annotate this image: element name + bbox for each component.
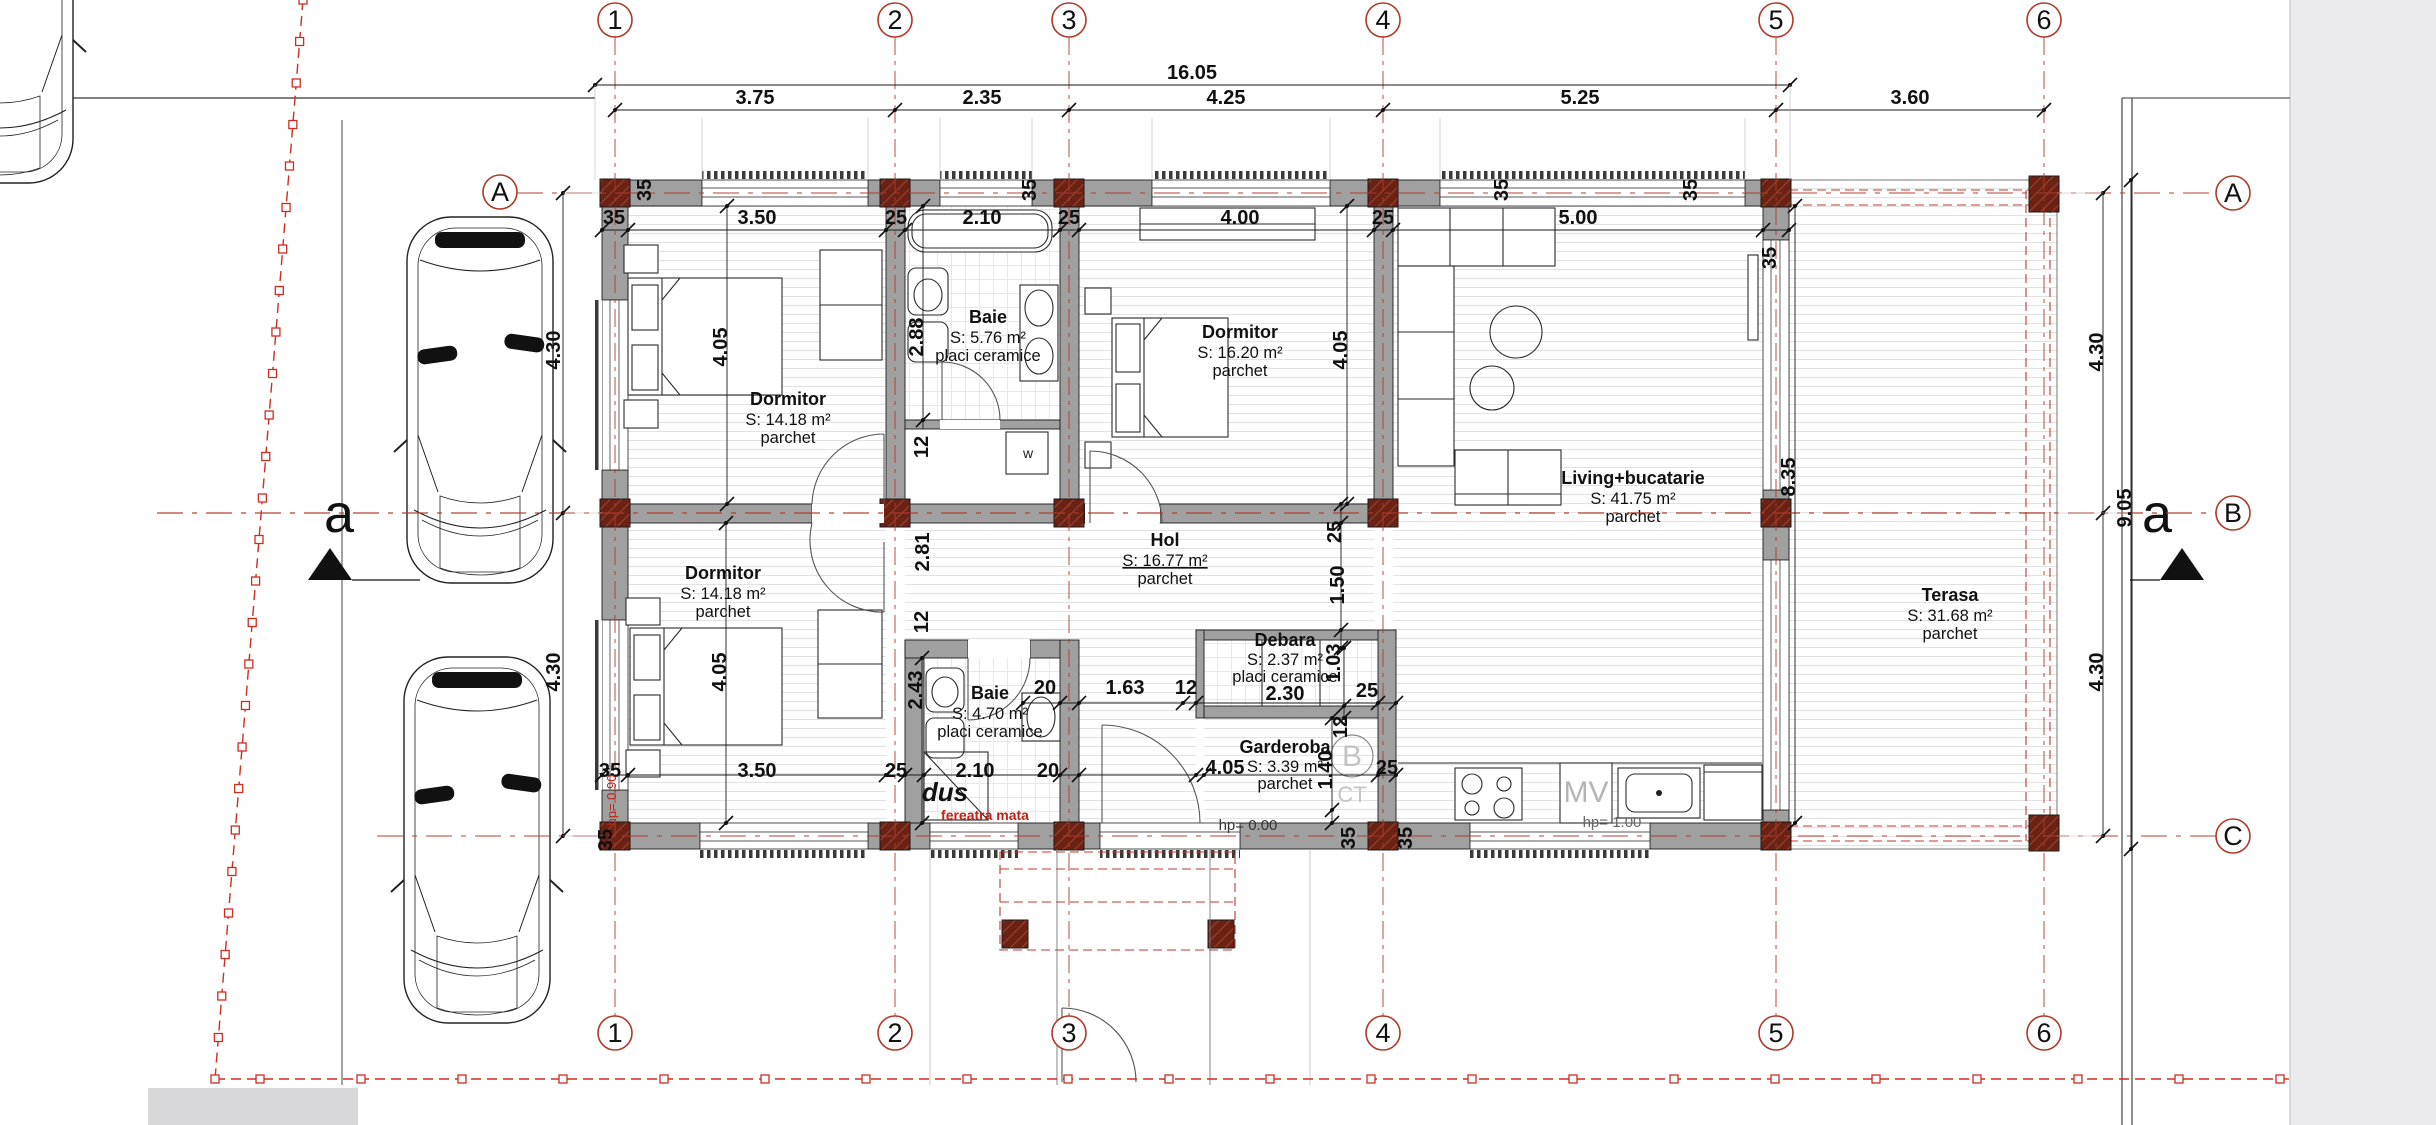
svg-text:Dormitor: Dormitor (750, 389, 826, 409)
boundary-marker (1165, 1075, 1173, 1083)
window-left-dormitor1 (594, 300, 628, 470)
axis-bubble-top-1-label: 1 (607, 5, 622, 35)
dim-dot (1345, 502, 1349, 506)
boundary-marker (963, 1075, 971, 1083)
dim-dot (921, 418, 925, 422)
porch-column (1002, 920, 1028, 948)
boundary-marker (269, 370, 277, 378)
dim-dot (1181, 701, 1185, 705)
dim-label: 1.63 (1106, 677, 1145, 699)
boundary-marker (1771, 1075, 1779, 1083)
dim-dot (1394, 701, 1398, 705)
svg-text:S: 3.39 m²: S: 3.39 m² (1247, 758, 1324, 776)
dim-dot (725, 204, 729, 208)
dim-dot (1761, 228, 1765, 232)
axis-bubble-top-2-label: 2 (887, 5, 902, 35)
dim-label: 35 (1019, 179, 1041, 201)
boundary-marker (225, 909, 233, 917)
boundary-marker (241, 702, 249, 710)
boundary-marker (248, 619, 256, 627)
dim-label: 25 (1058, 207, 1080, 229)
section-triangle-right (2160, 548, 2204, 580)
car-icon (0, 0, 86, 183)
boundary-marker (2175, 1075, 2183, 1083)
svg-text:Living+bucatarie: Living+bucatarie (1561, 468, 1705, 488)
dim-dot (1339, 628, 1343, 632)
dim-label: 25 (1356, 680, 1378, 702)
dim-dot (1077, 701, 1081, 705)
boundary-marker (245, 660, 253, 668)
axis-bubble-bottom-6-label: 6 (2036, 1018, 2051, 1048)
dim-label: 4.30 (2086, 333, 2108, 372)
dim-label: 3.50 (738, 207, 777, 229)
boundary-marker (235, 785, 243, 793)
dim-label: 35 (634, 179, 656, 201)
axis-bubble-top-5-label: 5 (1768, 5, 1783, 35)
boundary-marker (1064, 1075, 1072, 1083)
boundary-marker (296, 38, 304, 46)
dim-label: 3.50 (738, 760, 777, 782)
dim-label: 2.10 (963, 207, 1002, 229)
dim-dot (1021, 701, 1025, 705)
nightstand (624, 245, 658, 273)
boundary-marker (256, 1075, 264, 1083)
boundary-marker (660, 1075, 668, 1083)
dim-label: 25 (885, 207, 907, 229)
dim-label: 16.05 (1167, 62, 1217, 84)
dim-label: 8.35 (1778, 458, 1800, 497)
axis-bubble-right-A-label: A (2224, 178, 2242, 208)
svg-text:Dormitor: Dormitor (685, 563, 761, 583)
dim-label: 12 (1330, 716, 1352, 738)
svg-text:S: 16.20 m²: S: 16.20 m² (1197, 344, 1283, 362)
bottom-left-gray-box (148, 1088, 358, 1125)
boundary-marker (255, 536, 263, 544)
axis-bubble-bottom-1-label: 1 (607, 1018, 622, 1048)
cars (0, 0, 566, 1023)
dim-label: 12 (1175, 677, 1197, 699)
dim-dot (1345, 204, 1349, 208)
dim-dot (1342, 704, 1346, 708)
dim-label: 1.03 (1323, 644, 1345, 683)
porch (930, 849, 1310, 1085)
svg-text:S: 31.68 m²: S: 31.68 m² (1907, 607, 1993, 625)
sofa (1398, 208, 1555, 266)
dim-dot (724, 821, 728, 825)
window-bottom-dormitor3 (700, 823, 868, 858)
boundary-marker (2074, 1075, 2082, 1083)
boiler-label: B (1342, 740, 1362, 773)
axis-bubble-right-B-label: B (2224, 498, 2242, 528)
matte-window-label: fereatra mata (941, 807, 1029, 823)
svg-text:Baie: Baie (971, 683, 1009, 703)
dim-label: 4.30 (2086, 653, 2108, 692)
dim-label: 2.88 (906, 318, 928, 357)
svg-text:Dormitor: Dormitor (1202, 322, 1278, 342)
svg-text:Debara: Debara (1254, 630, 1316, 650)
svg-text:S: 14.18 m²: S: 14.18 m² (680, 585, 766, 603)
dim-label: 25 (1372, 207, 1394, 229)
dim-dot (725, 502, 729, 506)
dim-label: 20 (1037, 760, 1059, 782)
boundary-marker (238, 743, 246, 751)
boundary-marker (252, 577, 260, 585)
axis-bubble-top-3-label: 3 (1061, 5, 1076, 35)
dim-label: 2.35 (963, 87, 1002, 109)
boundary-marker (218, 992, 226, 1000)
boundary-marker (1872, 1075, 1880, 1083)
dim-label: 25 (1324, 521, 1346, 543)
boundary-marker (275, 287, 283, 295)
dim-label: 2.43 (905, 671, 927, 710)
boundary-marker (265, 411, 273, 419)
tv (1748, 255, 1758, 340)
dim-label: 25 (885, 760, 907, 782)
axis-bubble-top-4-label: 4 (1375, 5, 1390, 35)
dim-label: 35 (1338, 827, 1360, 849)
dim-dot (1339, 502, 1343, 506)
boundary-marker (1569, 1075, 1577, 1083)
dim-label: 2.30 (1266, 683, 1305, 705)
dim-label: 25 (1376, 757, 1398, 779)
axis-bubble-top-6-label: 6 (2036, 5, 2051, 35)
boundary-marker (299, 0, 307, 4)
fridge (1704, 765, 1762, 820)
dim-dot (613, 108, 617, 112)
svg-text:parchet: parchet (1257, 775, 1312, 793)
boundary-marker (272, 328, 280, 336)
svg-text:parchet: parchet (1137, 570, 1192, 588)
dim-label: 3.60 (1891, 87, 1930, 109)
svg-text:S: 16.77 m²: S: 16.77 m² (1122, 552, 1208, 570)
dim-dot (2042, 108, 2046, 112)
floorplan-drawing: a a Dormitor S: 14.18 m² parchet Baie S:… (0, 0, 2436, 1125)
dim-label: 12 (911, 611, 933, 633)
dim-dot (1194, 773, 1198, 777)
dim-dot (1058, 701, 1062, 705)
boundary-marker (761, 1075, 769, 1083)
dim-label: 4.05 (710, 328, 732, 367)
dim-label: 35 (595, 829, 617, 851)
window-top-dormitor1 (702, 171, 868, 206)
dim-label: 4.25 (1207, 87, 1246, 109)
ct-label: CT (1337, 782, 1366, 807)
dim-dot (1793, 821, 1797, 825)
dim-label: 5.25 (1561, 87, 1600, 109)
svg-text:parchet: parchet (1922, 625, 1977, 643)
entrance-level-label: hp= 0.00 (1219, 817, 1278, 834)
svg-text:parchet: parchet (760, 429, 815, 447)
dim-dot (2129, 847, 2133, 851)
dim-dot (1381, 108, 1385, 112)
axis-bubble-bottom-4-label: 4 (1375, 1018, 1390, 1048)
dim-label: 1.40 (1315, 751, 1337, 790)
dim-label: 4.30 (543, 331, 565, 370)
dim-dot (1077, 773, 1081, 777)
svg-text:Hol: Hol (1151, 530, 1180, 550)
dim-dot (1194, 701, 1198, 705)
axis-bubble-bottom-3-label: 3 (1061, 1018, 1076, 1048)
boundary-marker (357, 1075, 365, 1083)
boundary-marker (285, 162, 293, 170)
boundary-marker (221, 951, 229, 959)
dim-label: 35 (1491, 179, 1513, 201)
boundary-marker (279, 245, 287, 253)
window-bottom-baie2-matte (930, 823, 1018, 858)
boundary-marker (258, 494, 266, 502)
dim-dot (626, 228, 630, 232)
dim-label: 35 (1680, 179, 1702, 201)
dim-dot (1067, 108, 1071, 112)
boundary-marker (231, 826, 239, 834)
washing-machine-label: w (1022, 445, 1034, 461)
boundary-marker (862, 1075, 870, 1083)
window-top-dormitor2 (1152, 171, 1330, 206)
dim-label: 4.05 (1330, 331, 1352, 370)
right-gray-panel (2290, 0, 2436, 1125)
shower-label: dus (922, 777, 968, 807)
boundary-marker (292, 79, 300, 87)
svg-text:parchet: parchet (1212, 362, 1267, 380)
boundary-marker (458, 1075, 466, 1083)
section-label-right: a (2142, 484, 2173, 544)
porch-column (1208, 920, 1234, 948)
boundary-marker (214, 1034, 222, 1042)
kitchen-parapet-label: hp= 1.00 (1583, 814, 1642, 831)
svg-text:parchet: parchet (1605, 508, 1660, 526)
axis-bubble-bottom-2-label: 2 (887, 1018, 902, 1048)
parapet-height-left: hp= 0.90 (604, 775, 619, 826)
svg-text:S: 41.75 m²: S: 41.75 m² (1590, 490, 1676, 508)
dim-dot (1330, 821, 1334, 825)
dim-label: 4.05 (1206, 757, 1245, 779)
dim-dot (893, 108, 897, 112)
svg-text:S: 2.37 m²: S: 2.37 m² (1247, 651, 1324, 669)
boundary-marker (228, 868, 236, 876)
svg-text:placi ceramice: placi ceramice (935, 347, 1040, 365)
boundary-marker (289, 121, 297, 129)
svg-text:S: 5.76 m²: S: 5.76 m² (950, 329, 1027, 347)
boundary-marker (1468, 1075, 1476, 1083)
svg-text:placi ceramice: placi ceramice (937, 723, 1042, 741)
dim-dot (921, 204, 925, 208)
dim-dot (920, 821, 924, 825)
stove (1455, 768, 1522, 820)
dim-label: 2.81 (912, 533, 934, 572)
boundary-marker (1266, 1075, 1274, 1083)
boundary-marker (559, 1075, 567, 1083)
dim-label: 3.75 (736, 87, 775, 109)
dim-label: 4.05 (709, 653, 731, 692)
boundary-marker (282, 204, 290, 212)
svg-text:S: 14.18 m²: S: 14.18 m² (745, 411, 831, 429)
boundary-marker (1973, 1075, 1981, 1083)
axis-bubble-left-A-label: A (491, 177, 509, 207)
dim-label: 20 (1034, 677, 1056, 699)
boundary-marker (262, 453, 270, 461)
boundary-marker (1670, 1075, 1678, 1083)
boundary-marker (1367, 1075, 1375, 1083)
dim-dot (1793, 204, 1797, 208)
dim-label: 5.00 (1559, 207, 1598, 229)
sofa (1398, 266, 1454, 466)
svg-text:Terasa: Terasa (1922, 585, 1980, 605)
svg-text:S: 4.70 m²: S: 4.70 m² (952, 705, 1029, 723)
dim-label: 9.05 (2114, 489, 2136, 528)
axis-bubble-right-C-label: C (2223, 821, 2243, 851)
dim-dot (724, 521, 728, 525)
boundary-marker (2276, 1075, 2284, 1083)
nightstand (624, 400, 658, 428)
boundary-marker (211, 1075, 219, 1083)
section-label-left: a (324, 484, 355, 544)
dim-label: 4.30 (543, 653, 565, 692)
floorplan-viewer: a a Dormitor S: 14.18 m² parchet Baie S:… (0, 0, 2436, 1125)
dim-label: 35 (603, 207, 625, 229)
svg-text:Baie: Baie (969, 307, 1007, 327)
dim-dot (2129, 178, 2133, 182)
dim-dot (920, 656, 924, 660)
dim-label: 12 (911, 436, 933, 458)
svg-text:parchet: parchet (695, 603, 750, 621)
dim-label: 35 (1395, 827, 1417, 849)
axis-bubble-bottom-5-label: 5 (1768, 1018, 1783, 1048)
dim-dot (1787, 228, 1791, 232)
dim-dot (1774, 108, 1778, 112)
dim-label: 4.00 (1221, 207, 1260, 229)
section-triangle-left (308, 548, 352, 580)
dim-label: 1.50 (1327, 566, 1349, 605)
dim-dot (1330, 808, 1334, 812)
dim-label: 35 (1759, 247, 1781, 269)
microwave-label: MV (1564, 776, 1609, 809)
dim-dot (626, 773, 630, 777)
